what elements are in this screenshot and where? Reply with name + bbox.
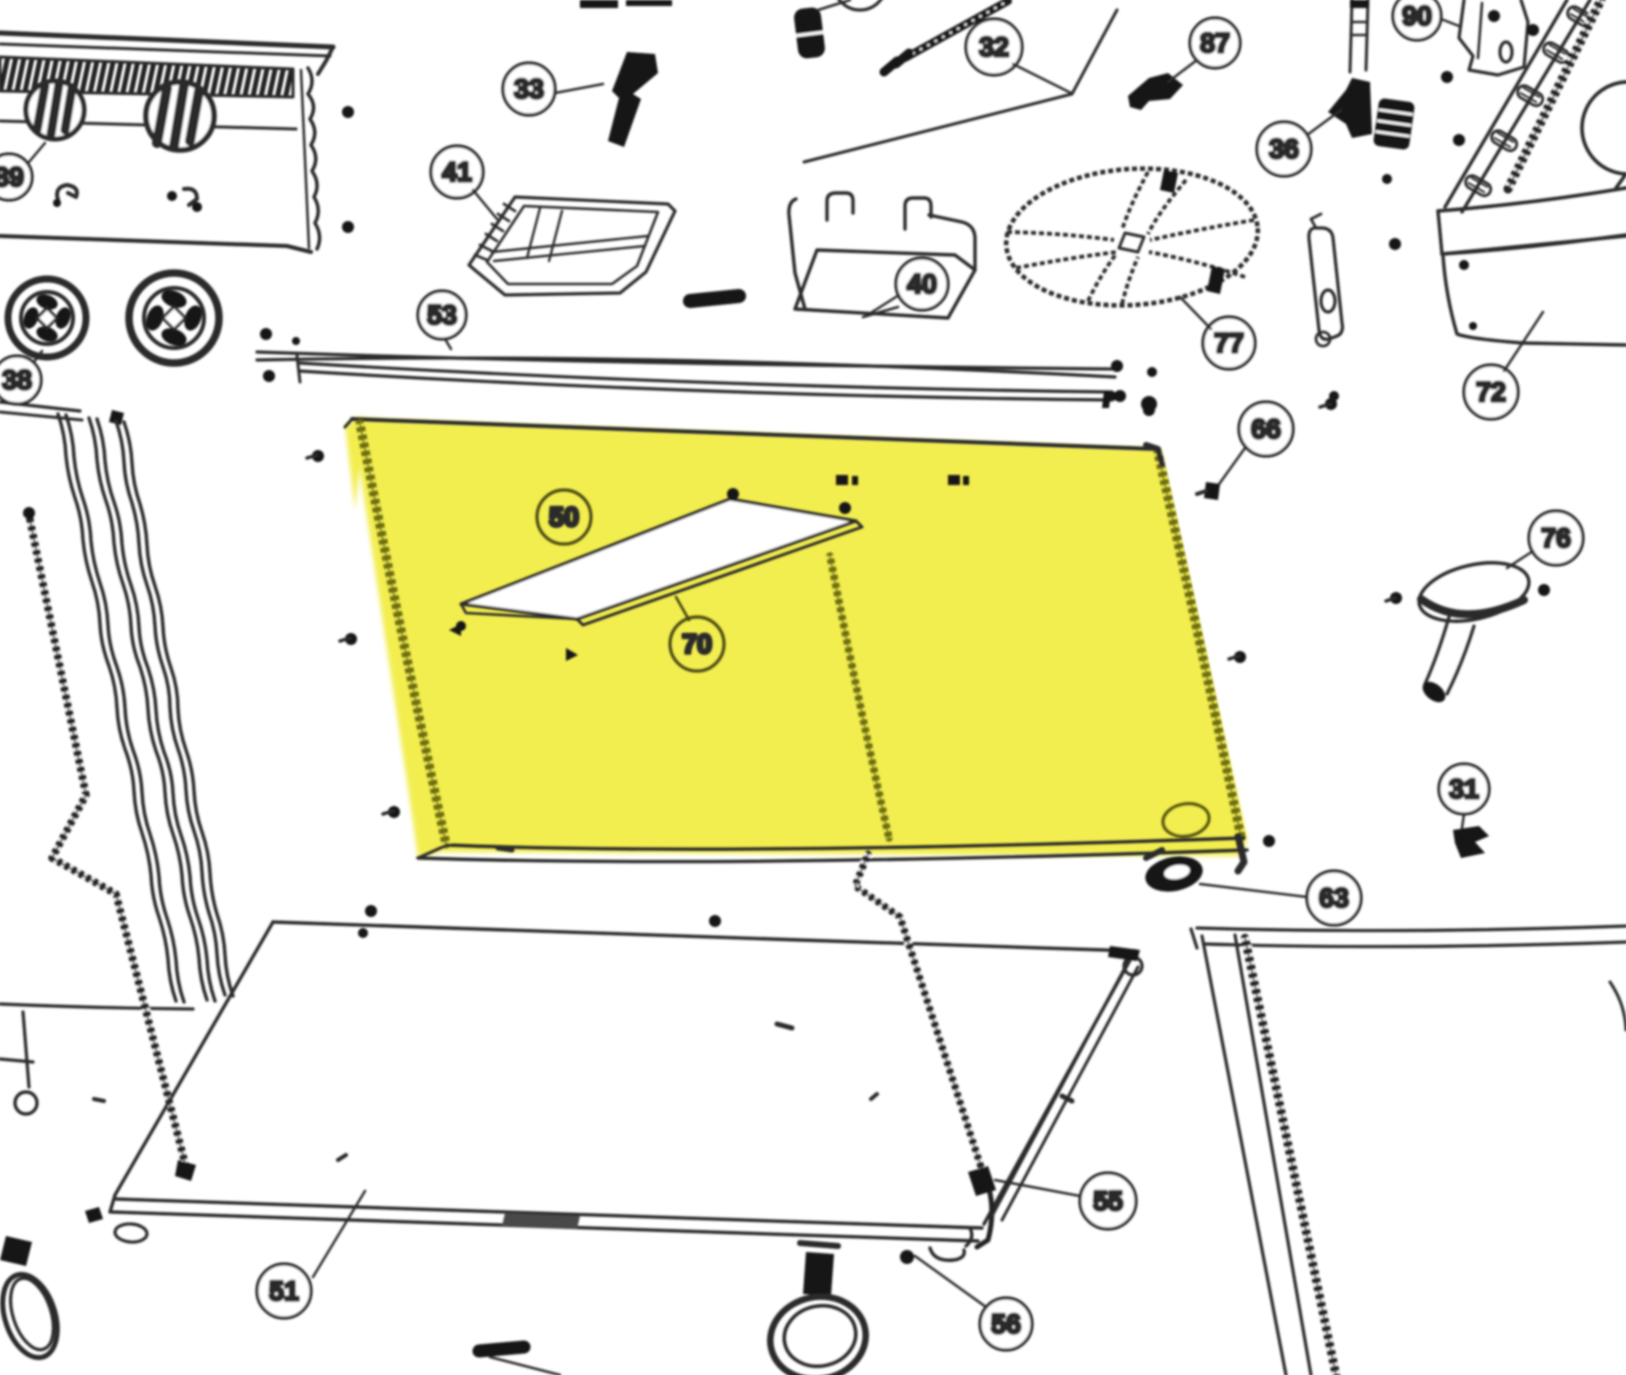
svg-text:40: 40 <box>907 269 937 299</box>
svg-text:90: 90 <box>1402 1 1432 31</box>
svg-text:76: 76 <box>1541 523 1571 553</box>
svg-text:50: 50 <box>549 502 579 532</box>
svg-text:72: 72 <box>1476 377 1506 407</box>
svg-text:33: 33 <box>514 74 544 104</box>
svg-text:66: 66 <box>1251 414 1281 444</box>
svg-text:70: 70 <box>682 629 712 659</box>
svg-text:38: 38 <box>2 365 32 395</box>
svg-text:77: 77 <box>1214 328 1244 358</box>
svg-text:41: 41 <box>442 157 472 187</box>
svg-text:55: 55 <box>1093 1186 1123 1216</box>
svg-text:63: 63 <box>1319 883 1349 913</box>
svg-text:36: 36 <box>1269 134 1299 164</box>
svg-text:39: 39 <box>0 162 24 192</box>
svg-text:56: 56 <box>991 1309 1021 1339</box>
svg-text:87: 87 <box>1200 28 1230 58</box>
svg-text:32: 32 <box>979 32 1009 62</box>
svg-text:31: 31 <box>1449 774 1479 804</box>
svg-text:51: 51 <box>269 1276 299 1306</box>
svg-text:53: 53 <box>427 300 457 330</box>
